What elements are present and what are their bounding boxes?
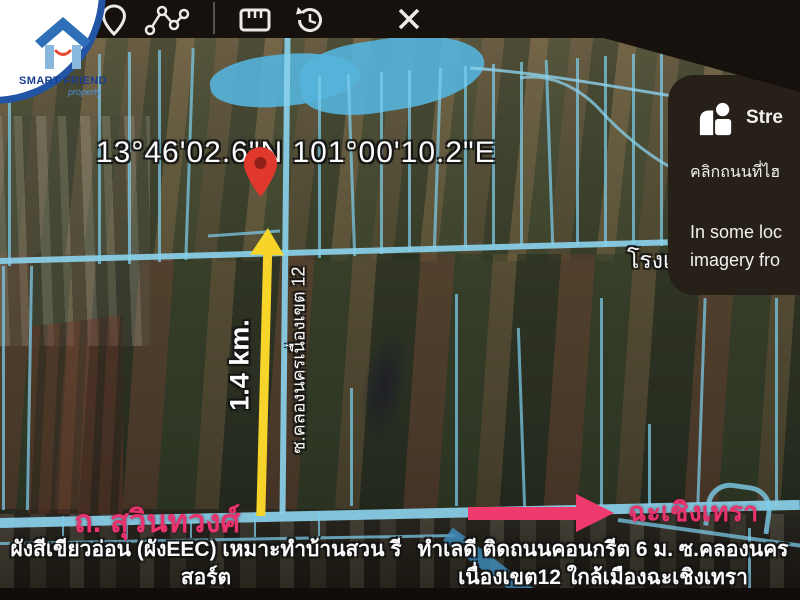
destination-label: ฉะเชิงเทรา [628,490,758,533]
arrow-head [576,494,614,532]
ruler-icon[interactable] [238,4,272,36]
canal-highlight [660,52,663,246]
canal-highlight [2,266,5,510]
distance-label: 1.4 km. [225,319,256,411]
canal-highlight [775,298,778,506]
canal-highlight [604,56,607,246]
close-icon[interactable] [392,4,426,36]
canal-highlight [350,388,353,506]
logo-title: SMART FRIEND [15,75,111,87]
place-label-truncated: โรงเ [627,243,671,279]
smart-friend-logo: SMART FRIEND property [0,0,106,104]
house-icon [33,15,93,75]
canal-highlight [455,294,458,506]
caption-line: ทำเลดี ติดถนนคอนกรีต 6 ม. ซ.คลองนคร [412,536,794,564]
map-pin[interactable] [244,147,277,197]
canal-highlight [600,298,603,506]
canal-highlight [318,512,320,536]
streetview-pegman-icon [698,101,734,137]
arrow-shaft [468,507,578,520]
canal-highlight [632,54,635,246]
canal-highlight [576,58,579,246]
toolbar [0,0,800,38]
google-earth-screenshot: 13°46'02.6"N 101°00'10.2"E 1.4 km. ซ.คลอ… [0,0,800,600]
logo-subtitle: property [15,87,101,97]
soi-road-label: ซ.คลองนครเนื่องเขต 12 [284,266,313,453]
streetview-panel: Stre คลิกถนนที่ไฮ In some loc imagery fr… [668,75,800,295]
history-icon[interactable] [293,4,327,36]
caption-right: ทำเลดี ติดถนนคอนกรีต 6 ม. ซ.คลองนคร เนื่… [412,536,794,592]
route-icon[interactable] [142,4,190,36]
streetview-panel-title: Stre [746,107,783,129]
toolbar-divider [213,2,215,34]
caption-line: ผังสีเขียวอ่อน (ผังEEC) เหมาะทำบ้านสวน ร… [2,536,410,592]
note-line: imagery fro [690,246,782,274]
streetview-note: In some loc imagery fro [690,218,782,274]
canal-highlight [520,62,523,246]
streetview-hint-thai: คลิกถนนที่ไฮ [690,160,780,185]
screen-edge-bottom [0,588,800,600]
logo-content: SMART FRIEND property [15,13,111,109]
arrow-shaft [256,252,272,516]
note-line: In some loc [690,218,782,246]
coordinates-label: 13°46'02.6"N 101°00'10.2"E [96,136,496,170]
direction-arrow [468,494,618,534]
